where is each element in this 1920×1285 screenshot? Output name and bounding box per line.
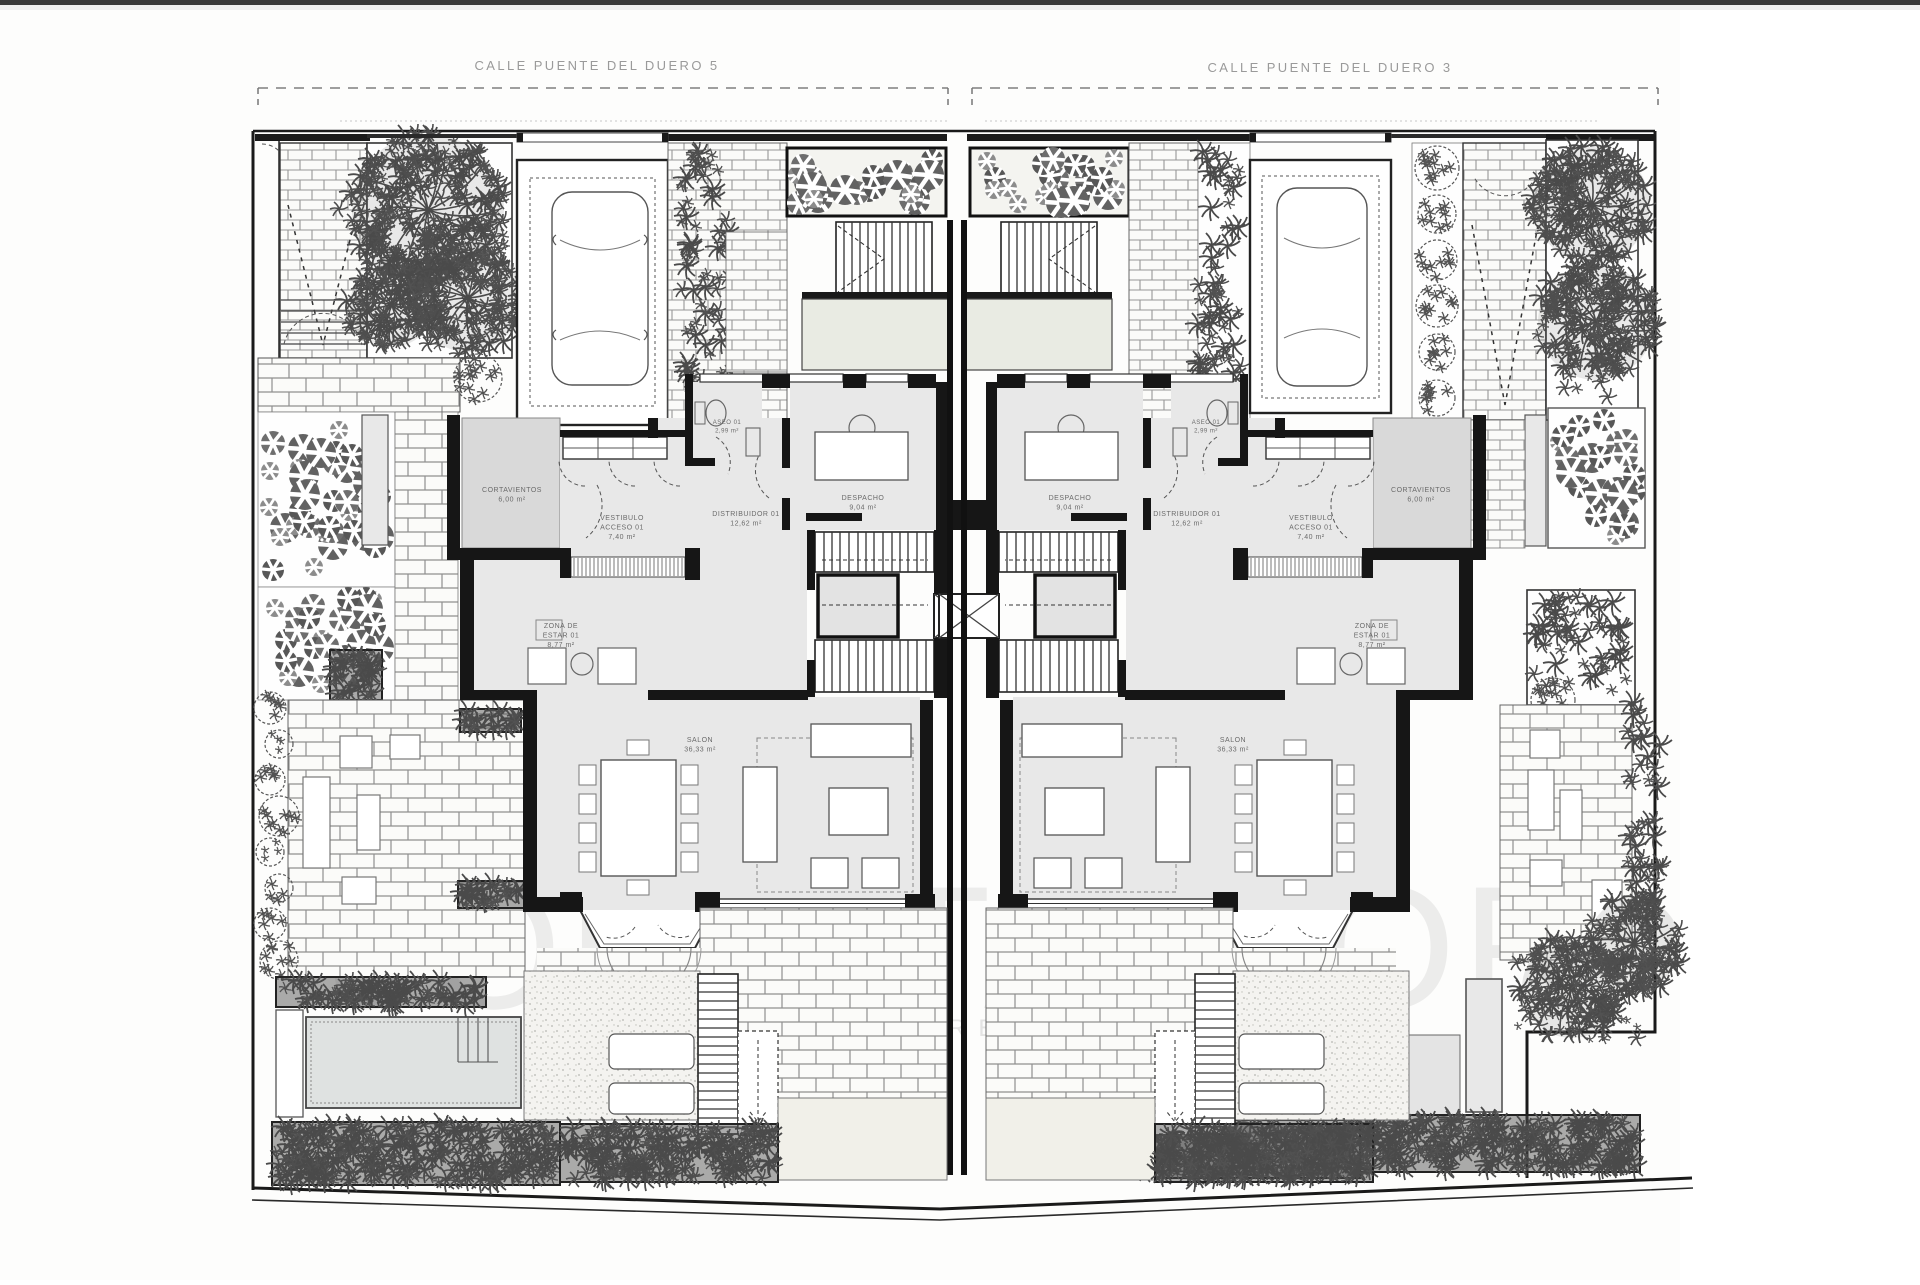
svg-text:VESTIBULO: VESTIBULO xyxy=(1289,515,1333,522)
svg-text:2,99 m²: 2,99 m² xyxy=(1194,429,1218,435)
svg-text:DESPACHO: DESPACHO xyxy=(842,495,885,502)
svg-text:12,62 m²: 12,62 m² xyxy=(1171,521,1203,528)
svg-text:DISTRIBUIDOR 01: DISTRIBUIDOR 01 xyxy=(712,511,779,518)
svg-text:DESPACHO: DESPACHO xyxy=(1049,495,1092,502)
svg-text:ACCESO 01: ACCESO 01 xyxy=(600,525,644,532)
svg-text:SALON: SALON xyxy=(1220,737,1246,744)
svg-text:CALLE PUENTE DEL DUERO 3: CALLE PUENTE DEL DUERO 3 xyxy=(1208,60,1453,75)
svg-text:9,04 m²: 9,04 m² xyxy=(849,505,876,512)
svg-text:7,40 m²: 7,40 m² xyxy=(1297,534,1324,541)
svg-text:ESTAR 01: ESTAR 01 xyxy=(1354,633,1391,640)
svg-text:VESTIBULO: VESTIBULO xyxy=(600,515,644,522)
svg-text:7,40 m²: 7,40 m² xyxy=(608,534,635,541)
svg-text:CORTAVIENTOS: CORTAVIENTOS xyxy=(482,487,542,494)
svg-text:12,62 m²: 12,62 m² xyxy=(730,521,762,528)
svg-text:36,33 m²: 36,33 m² xyxy=(684,747,716,754)
svg-text:ASEO 01: ASEO 01 xyxy=(1192,420,1221,426)
svg-text:DISTRIBUIDOR 01: DISTRIBUIDOR 01 xyxy=(1153,511,1220,518)
svg-text:ASEO 01: ASEO 01 xyxy=(713,420,742,426)
svg-text:8,77 m²: 8,77 m² xyxy=(547,642,574,649)
svg-text:8,77 m²: 8,77 m² xyxy=(1358,642,1385,649)
svg-text:6,00 m²: 6,00 m² xyxy=(1407,497,1434,504)
svg-text:ZONA DE: ZONA DE xyxy=(1355,623,1389,630)
svg-text:SALON: SALON xyxy=(687,737,713,744)
svg-text:36,33 m²: 36,33 m² xyxy=(1217,747,1249,754)
svg-text:CORTAVIENTOS: CORTAVIENTOS xyxy=(1391,487,1451,494)
svg-text:ESTAR 01: ESTAR 01 xyxy=(543,633,580,640)
svg-text:ZONA DE: ZONA DE xyxy=(544,623,578,630)
svg-text:2,99 m²: 2,99 m² xyxy=(715,429,739,435)
svg-text:9,04 m²: 9,04 m² xyxy=(1056,505,1083,512)
svg-text:ACCESO 01: ACCESO 01 xyxy=(1289,525,1333,532)
svg-text:CALLE PUENTE DEL DUERO 5: CALLE PUENTE DEL DUERO 5 xyxy=(475,58,720,73)
svg-text:6,00 m²: 6,00 m² xyxy=(498,497,525,504)
